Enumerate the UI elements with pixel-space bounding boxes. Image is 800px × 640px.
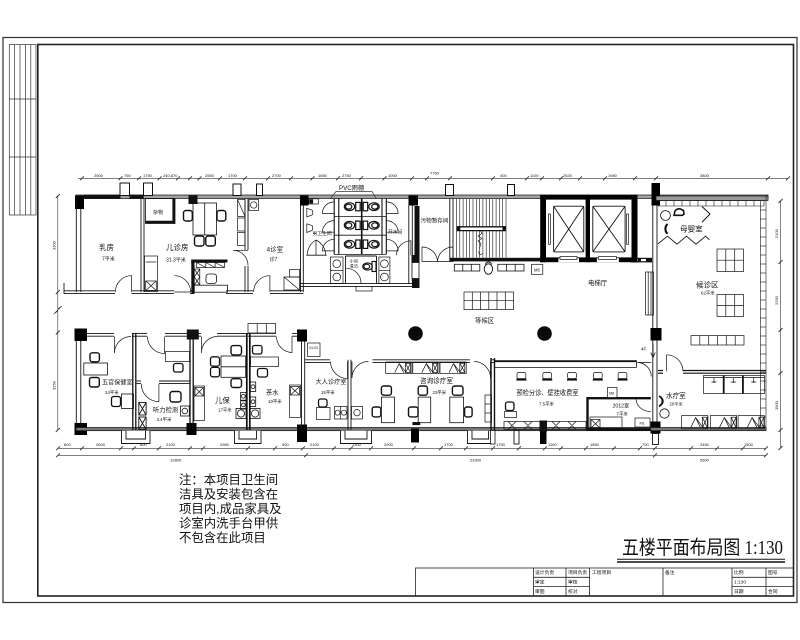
svg-text:62平米: 62平米 [701, 290, 715, 297]
svg-text:M6: M6 [534, 267, 540, 272]
svg-text:污物暂存间: 污物暂存间 [421, 217, 449, 225]
svg-text:900: 900 [282, 442, 289, 447]
svg-text:备注: 备注 [665, 569, 675, 576]
svg-text:比例: 比例 [734, 569, 744, 576]
svg-text:注：本项目卫生间: 注：本项目卫生间 [179, 472, 278, 487]
svg-text:1980: 1980 [608, 173, 618, 178]
svg-text:3.4平米: 3.4平米 [157, 416, 172, 423]
svg-text:大人诊疗室: 大人诊疗室 [316, 378, 347, 386]
svg-text:17平米: 17平米 [218, 407, 232, 414]
svg-text:3800: 3800 [700, 173, 710, 178]
svg-text:预检分诊、壁挂收费室: 预检分诊、壁挂收费室 [517, 388, 579, 397]
svg-text:24平米: 24平米 [105, 389, 119, 396]
svg-text:咨询诊疗室: 咨询诊疗室 [420, 376, 453, 385]
svg-text:31.3平米: 31.3平米 [166, 257, 186, 264]
svg-text:图号: 图号 [768, 570, 778, 576]
svg-text:乳房: 乳房 [99, 242, 114, 252]
svg-text:清洁: 清洁 [350, 263, 358, 270]
svg-text:水疗室: 水疗室 [666, 391, 686, 400]
svg-text:五官保健室: 五官保健室 [102, 379, 132, 387]
svg-text:诊室内洗手台甲供: 诊室内洗手台甲供 [179, 516, 278, 531]
svg-text:候诊区: 候诊区 [696, 280, 719, 290]
svg-text:儿保: 儿保 [215, 396, 230, 405]
svg-text:2550: 2550 [205, 173, 215, 178]
svg-text:校对: 校对 [568, 588, 578, 595]
svg-text:洁具及安装包含在: 洁具及安装包含在 [179, 487, 278, 502]
svg-text:Gt-03: Gt-03 [309, 346, 318, 350]
svg-text:1100: 1100 [548, 442, 557, 447]
svg-text:开水间: 开水间 [388, 229, 403, 236]
svg-text:诊7: 诊7 [270, 256, 278, 263]
svg-text:1750: 1750 [143, 173, 153, 178]
svg-text:等候区: 等候区 [475, 316, 495, 325]
svg-text:1700: 1700 [228, 173, 238, 178]
svg-text:15平米: 15平米 [321, 389, 335, 396]
svg-text:800: 800 [140, 442, 147, 447]
svg-text:M6: M6 [609, 391, 614, 395]
svg-text:2520: 2520 [563, 173, 573, 178]
svg-text:4诊室: 4诊室 [267, 245, 284, 254]
svg-text:20平米: 20平米 [670, 401, 684, 408]
svg-text:23平米: 23平米 [433, 389, 447, 396]
svg-text:1850: 1850 [590, 442, 600, 447]
svg-text:日期: 日期 [734, 589, 744, 595]
svg-text:7750: 7750 [430, 171, 440, 176]
svg-text:7平米: 7平米 [617, 411, 629, 418]
svg-text:听力检测: 听力检测 [153, 405, 178, 414]
svg-text:1:130: 1:130 [734, 580, 746, 586]
svg-text:设计负责: 设计负责 [535, 569, 554, 576]
svg-text:2450: 2450 [700, 442, 710, 447]
svg-text:600: 600 [64, 442, 71, 447]
svg-text:750: 750 [124, 173, 131, 178]
svg-text:审定: 审定 [535, 579, 545, 586]
svg-text:儿诊房: 儿诊房 [166, 242, 189, 252]
svg-text:合同: 合同 [768, 588, 778, 595]
svg-text:1650: 1650 [318, 173, 328, 178]
svg-text:240,870: 240,870 [163, 173, 178, 178]
svg-text:PVC雨棚: PVC雨棚 [339, 184, 364, 192]
svg-text:茶水: 茶水 [266, 388, 279, 397]
svg-text:2100: 2100 [774, 228, 779, 238]
svg-text:2600: 2600 [96, 442, 106, 447]
svg-text:1500: 1500 [744, 442, 754, 447]
svg-text:五楼平面布局图 1:130: 五楼平面布局图 1:130 [622, 537, 783, 559]
svg-text:1750: 1750 [496, 442, 506, 447]
svg-text:5600: 5600 [700, 458, 710, 463]
svg-text:7平米: 7平米 [102, 256, 115, 263]
svg-text:1700: 1700 [444, 442, 454, 447]
svg-text:2100: 2100 [166, 442, 176, 447]
svg-text:3300: 3300 [52, 240, 57, 250]
svg-text:2250: 2250 [774, 295, 779, 305]
svg-text:7.5平米: 7.5平米 [539, 401, 554, 408]
svg-text:2750: 2750 [342, 173, 352, 178]
svg-text:700: 700 [642, 442, 649, 447]
svg-text:1100: 1100 [530, 173, 539, 178]
svg-text:2960: 2960 [220, 442, 230, 447]
svg-text:2900: 2900 [384, 442, 394, 447]
svg-text:400: 400 [500, 173, 507, 178]
svg-text:3250: 3250 [52, 380, 57, 390]
svg-text:4F: 4F [641, 347, 647, 352]
svg-text:审图: 审图 [535, 588, 545, 595]
svg-text:1900: 1900 [774, 400, 779, 410]
svg-text:12800: 12800 [170, 458, 182, 463]
svg-text:项目内,成品家具及: 项目内,成品家具及 [179, 501, 282, 516]
svg-text:杂物: 杂物 [153, 209, 163, 216]
svg-text:1300: 1300 [352, 442, 362, 447]
svg-text:2700: 2700 [272, 173, 282, 178]
svg-text:电梯厅: 电梯厅 [588, 278, 608, 287]
svg-text:10平米: 10平米 [268, 398, 282, 405]
svg-text:不包含在此项目: 不包含在此项目 [179, 530, 266, 545]
svg-text:项目负责: 项目负责 [568, 569, 587, 576]
svg-text:2500: 2500 [94, 173, 104, 178]
svg-text:母婴室: 母婴室 [680, 223, 703, 233]
svg-text:工程项目: 工程项目 [592, 569, 611, 576]
svg-text:1000: 1000 [388, 173, 398, 178]
svg-text:23300: 23300 [470, 458, 482, 463]
svg-text:2100: 2100 [310, 442, 320, 447]
svg-text:审核: 审核 [568, 579, 578, 586]
svg-text:M1: M1 [640, 422, 645, 426]
svg-text:2012室: 2012室 [613, 402, 630, 410]
